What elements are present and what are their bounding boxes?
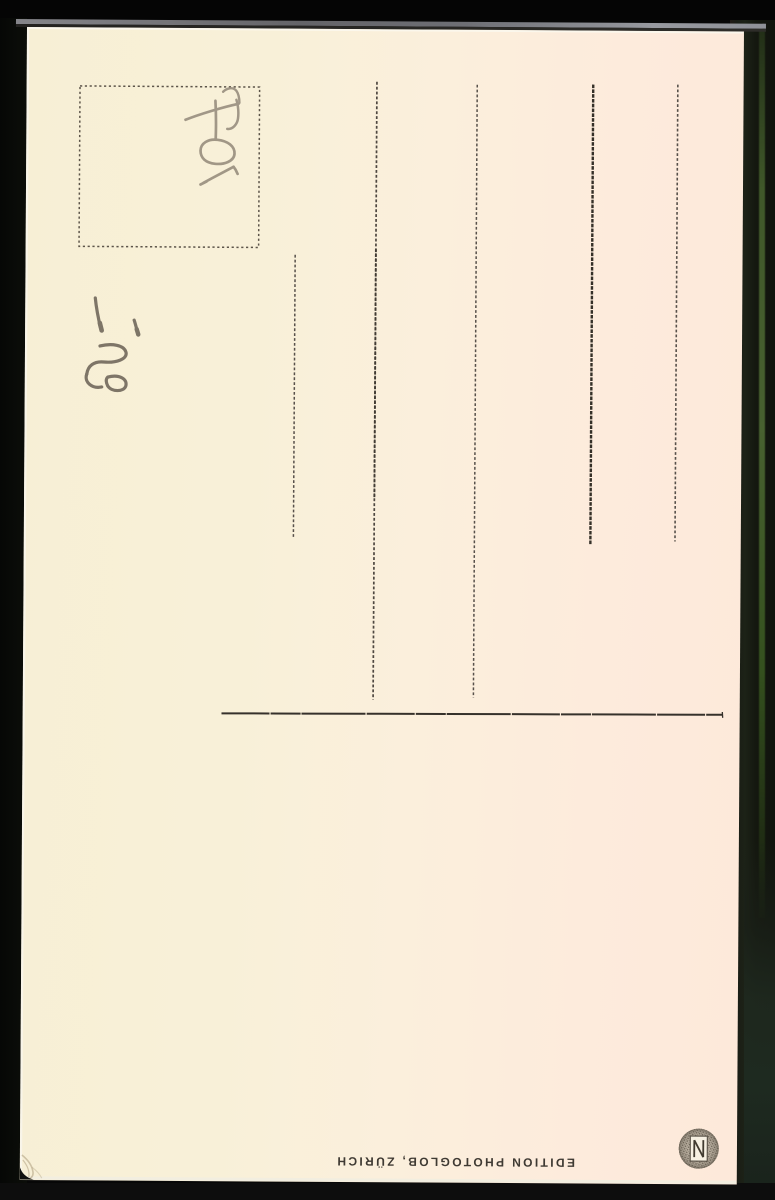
svg-text:EDITION PHOTOGLOB, ZÜRICH: EDITION PHOTOGLOB, ZÜRICH (334, 1154, 574, 1171)
